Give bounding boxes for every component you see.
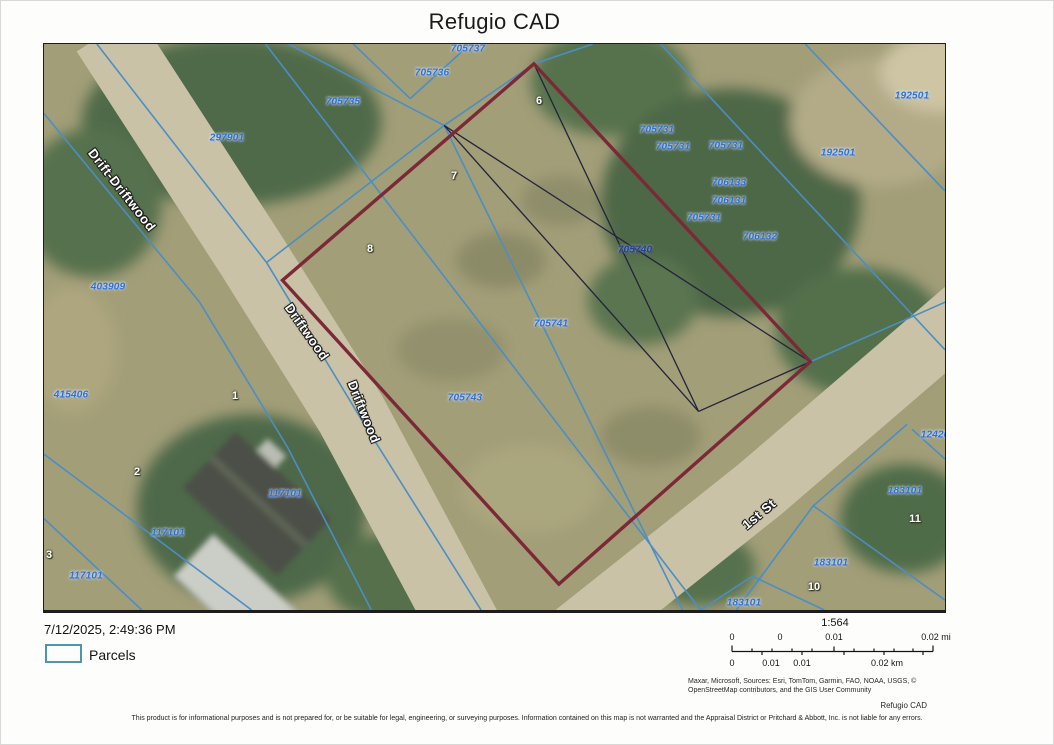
parcel-id-label: 705741 [534, 319, 569, 330]
parcel-id-label: 124201 [921, 430, 945, 441]
parcel-id-label: 192501 [821, 148, 856, 159]
parcel-id-label: 297901 [210, 133, 245, 144]
attribution-line: Maxar, Microsoft, Sources: Esri, TomTom,… [688, 678, 988, 687]
parcel-id-label: 117101 [268, 489, 302, 500]
lot-number-label: 8 [367, 243, 373, 255]
parcel-id-label: 192501 [895, 91, 930, 102]
scale-mi-label: 0 [777, 632, 782, 642]
parcel-id-label: 403909 [91, 282, 126, 293]
scale-bar [731, 645, 935, 657]
lot-number-label: 7 [451, 170, 457, 182]
lot-number-label: 3 [46, 549, 52, 561]
lot-number-label: 10 [808, 581, 820, 593]
parcel-id-label: 705743 [448, 393, 483, 404]
scale-mi-label: 0 [729, 632, 734, 642]
map-attribution: Maxar, Microsoft, Sources: Esri, TomTom,… [688, 678, 988, 695]
parcel-id-label: 705731 [687, 213, 722, 224]
scale-mi-labels: 000.010.02 mi [1, 632, 1053, 644]
street-name-label: Drift-Driftwood [85, 146, 159, 235]
parcel-id-label: 705737 [451, 44, 486, 55]
map-canvas[interactable]: 7057377057367057352979011925011925017057… [43, 43, 946, 613]
scale-km-label: 0 [729, 658, 734, 668]
parcel-id-label: 117101 [151, 528, 185, 539]
lot-number-label: 6 [536, 95, 542, 107]
parcel-id-label: 415406 [54, 390, 89, 401]
attribution-line: OpenStreetMap contributors, and the GIS … [688, 687, 988, 696]
lot-number-label: 2 [134, 466, 140, 478]
page-title: Refugio CAD [43, 9, 946, 35]
scale-mi-label: 0.01 [825, 632, 843, 642]
parcel-id-label: 117101 [69, 571, 103, 582]
parcel-id-label: 706132 [743, 232, 778, 243]
parcel-id-label: 183101 [727, 598, 762, 609]
map-labels-overlay: 7057377057367057352979011925011925017057… [44, 44, 945, 610]
street-name-label: Driftwood [345, 379, 384, 446]
parcel-id-label: 183101 [814, 558, 849, 569]
disclaimer: This product is for informational purpos… [1, 715, 1053, 722]
parcel-id-label: 705731 [709, 141, 744, 152]
parcel-id-label: 705736 [415, 68, 450, 79]
scale-ratio: 1:564 [821, 617, 849, 629]
street-name-label: Driftwood [282, 301, 332, 364]
parcel-id-label: 705740 [618, 245, 653, 256]
scale-km-label: 0.02 km [871, 658, 903, 668]
scale-km-label: 0.01 [762, 658, 780, 668]
parcel-id-label: 705735 [326, 97, 361, 108]
parcel-id-label: 706131 [712, 196, 747, 207]
footer-brand: Refugio CAD [880, 701, 927, 710]
scale-km-label: 0.01 [793, 658, 811, 668]
parcel-id-label: 706133 [712, 178, 747, 189]
parcel-id-label: 705731 [656, 142, 691, 153]
street-name-label: 1st St [739, 496, 779, 533]
scale-mi-label: 0.02 mi [921, 632, 951, 642]
lot-number-label: 1 [232, 390, 238, 402]
parcel-id-label: 183101 [888, 486, 923, 497]
parcel-id-label: 705731 [640, 125, 675, 136]
scale-km-labels: 00.010.010.02 km [1, 658, 1053, 670]
page: Refugio CAD [0, 0, 1054, 745]
lot-number-label: 11 [909, 513, 921, 525]
